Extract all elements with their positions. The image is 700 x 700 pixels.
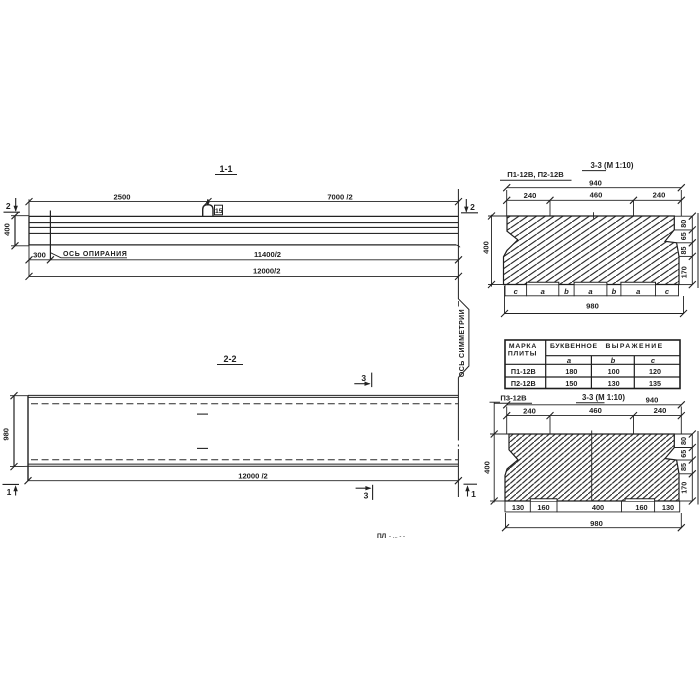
svg-text:b: b <box>612 287 617 296</box>
svg-text:130: 130 <box>662 503 674 512</box>
svg-text:1-1: 1-1 <box>219 164 232 174</box>
svg-text:БУКВЕННОЕ: БУКВЕННОЕ <box>550 343 598 350</box>
svg-text:П1-12В, П2-12В: П1-12В, П2-12В <box>507 170 564 179</box>
svg-text:2: 2 <box>6 201 11 211</box>
svg-text:П1-12В: П1-12В <box>511 367 536 376</box>
svg-text:160: 160 <box>537 503 549 512</box>
svg-text:240: 240 <box>523 406 536 415</box>
svg-text:180: 180 <box>565 367 577 376</box>
svg-text:65: 65 <box>679 450 688 458</box>
svg-text:12000 /2: 12000 /2 <box>238 472 268 481</box>
svg-text:980: 980 <box>2 428 11 441</box>
svg-text:b: b <box>611 356 616 365</box>
svg-text:2500: 2500 <box>114 192 131 201</box>
svg-text:240: 240 <box>654 406 667 415</box>
svg-text:12000/2: 12000/2 <box>253 267 280 276</box>
svg-text:460: 460 <box>590 191 603 200</box>
svg-text:МАРКА: МАРКА <box>509 343 537 350</box>
svg-text:65: 65 <box>679 232 688 240</box>
svg-text:400: 400 <box>483 461 492 474</box>
svg-text:- ... - -: - ... - - <box>389 534 405 540</box>
svg-text:130: 130 <box>512 503 524 512</box>
svg-text:170: 170 <box>680 482 689 494</box>
svg-text:100: 100 <box>608 367 620 376</box>
svg-text:460: 460 <box>589 406 602 415</box>
svg-text:П2-12В: П2-12В <box>511 379 536 388</box>
svg-text:940: 940 <box>589 179 602 188</box>
svg-text:c: c <box>651 356 656 365</box>
svg-text:400: 400 <box>592 503 604 512</box>
svg-text:ВЫРАЖЕНИЕ: ВЫРАЖЕНИЕ <box>606 343 664 350</box>
svg-text:980: 980 <box>590 519 603 528</box>
svg-text:11400/2: 11400/2 <box>254 250 281 259</box>
svg-text:940: 940 <box>646 396 659 405</box>
svg-text:ПЛИТЫ: ПЛИТЫ <box>508 351 537 358</box>
svg-text:980: 980 <box>586 302 599 311</box>
svg-text:a: a <box>636 287 640 296</box>
svg-text:ОСЬ СИММЕТРИИ: ОСЬ СИММЕТРИИ <box>459 309 466 377</box>
svg-text:3: 3 <box>364 490 369 500</box>
svg-text:80: 80 <box>679 220 688 228</box>
svg-text:160: 160 <box>635 503 647 512</box>
svg-text:135: 135 <box>649 379 661 388</box>
svg-text:П3-12В: П3-12В <box>500 394 527 403</box>
svg-text:2: 2 <box>470 202 475 212</box>
svg-text:3: 3 <box>361 373 366 383</box>
svg-text:c: c <box>514 287 519 296</box>
svg-text:400: 400 <box>481 241 490 254</box>
svg-text:2-2: 2-2 <box>223 354 236 364</box>
svg-text:1: 1 <box>7 487 12 497</box>
svg-text:130: 130 <box>608 379 620 388</box>
svg-text:a: a <box>567 356 571 365</box>
svg-text:85: 85 <box>679 247 688 255</box>
svg-text:15: 15 <box>215 208 223 215</box>
svg-text:240: 240 <box>524 191 537 200</box>
svg-text:3-3 (М 1:10): 3-3 (М 1:10) <box>591 161 634 170</box>
svg-text:7000 /2: 7000 /2 <box>327 192 352 201</box>
svg-text:ПЛ: ПЛ <box>377 533 387 540</box>
svg-text:1: 1 <box>471 489 476 499</box>
svg-text:170: 170 <box>680 266 689 278</box>
svg-text:a: a <box>541 287 545 296</box>
svg-text:240: 240 <box>653 191 666 200</box>
svg-text:3-3 (М 1:10): 3-3 (М 1:10) <box>582 393 625 402</box>
svg-text:400: 400 <box>3 223 12 236</box>
svg-text:85: 85 <box>679 463 688 471</box>
svg-text:b: b <box>564 287 569 296</box>
svg-text:ОСЬ ОПИРАНИЯ: ОСЬ ОПИРАНИЯ <box>63 251 127 258</box>
svg-text:80: 80 <box>679 437 688 445</box>
svg-text:a: a <box>588 287 592 296</box>
svg-text:300: 300 <box>33 251 46 260</box>
svg-text:c: c <box>665 287 670 296</box>
svg-text:120: 120 <box>649 367 661 376</box>
svg-text:150: 150 <box>565 379 577 388</box>
